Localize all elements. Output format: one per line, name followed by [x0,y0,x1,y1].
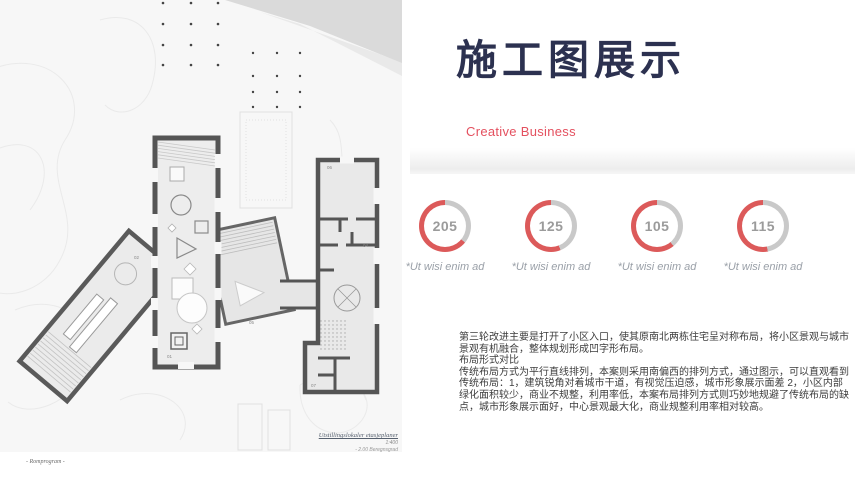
stats-row: 205 *Ut wisi enim ad 125 *Ut wisi enim a… [410,200,855,290]
stat-label: *Ut wisi enim ad [397,261,493,273]
site-plan-drawing: 01 02 04 05 06 07 [0,0,402,452]
stat-item: 115 *Ut wisi enim ad [715,200,811,273]
progress-ring: 105 [631,200,683,252]
progress-ring: 125 [525,200,577,252]
plan-caption: Utstillingslokaler etasjeplaner 1:400 - … [298,432,398,453]
stat-item: 105 *Ut wisi enim ad [609,200,705,273]
stat-item: 205 *Ut wisi enim ad [397,200,493,273]
stat-value: 125 [525,200,577,252]
room-label-04: 04 [363,243,369,248]
room-label-07: 07 [311,383,317,388]
section-divider [410,148,855,174]
stat-label: *Ut wisi enim ad [609,261,705,273]
body-paragraph: 第三轮改进主要是打开了小区入口，使其原南北两栋住宅呈对称布局，将小区景观与城市景… [459,332,851,355]
plan-caption-note: - 2.00 Beregnsgrad [298,447,398,453]
room-label-02: 02 [134,255,140,260]
stat-label: *Ut wisi enim ad [715,261,811,273]
page-title: 施工图展示 [456,26,686,86]
stat-value: 105 [631,200,683,252]
stat-item: 125 *Ut wisi enim ad [503,200,599,273]
plan-caption-title: Utstillingslokaler etasjeplaner [298,432,398,439]
body-paragraph: 布局形式对比 [459,355,851,367]
body-text: 第三轮改进主要是打开了小区入口，使其原南北两栋住宅呈对称布局，将小区景观与城市景… [459,332,851,413]
plan-footer-label: - Romprogram - [26,459,65,465]
progress-ring: 115 [737,200,789,252]
plan-caption-scale: 1:400 [298,440,398,446]
body-paragraph: 传统布局方式为平行直线排列，本案则采用南偏西的排列方式，通过图示，可以直观看到传… [459,367,851,413]
stat-label: *Ut wisi enim ad [503,261,599,273]
room-label-05: 05 [249,320,255,325]
site-plan-panel: 01 02 04 05 06 07 Utstillingslokaler eta… [0,0,402,480]
room-label-06: 06 [327,165,333,170]
page-subtitle: Creative Business [466,124,576,139]
progress-ring: 205 [419,200,471,252]
room-label-01: 01 [167,354,173,359]
stat-value: 115 [737,200,789,252]
stat-value: 205 [419,200,471,252]
